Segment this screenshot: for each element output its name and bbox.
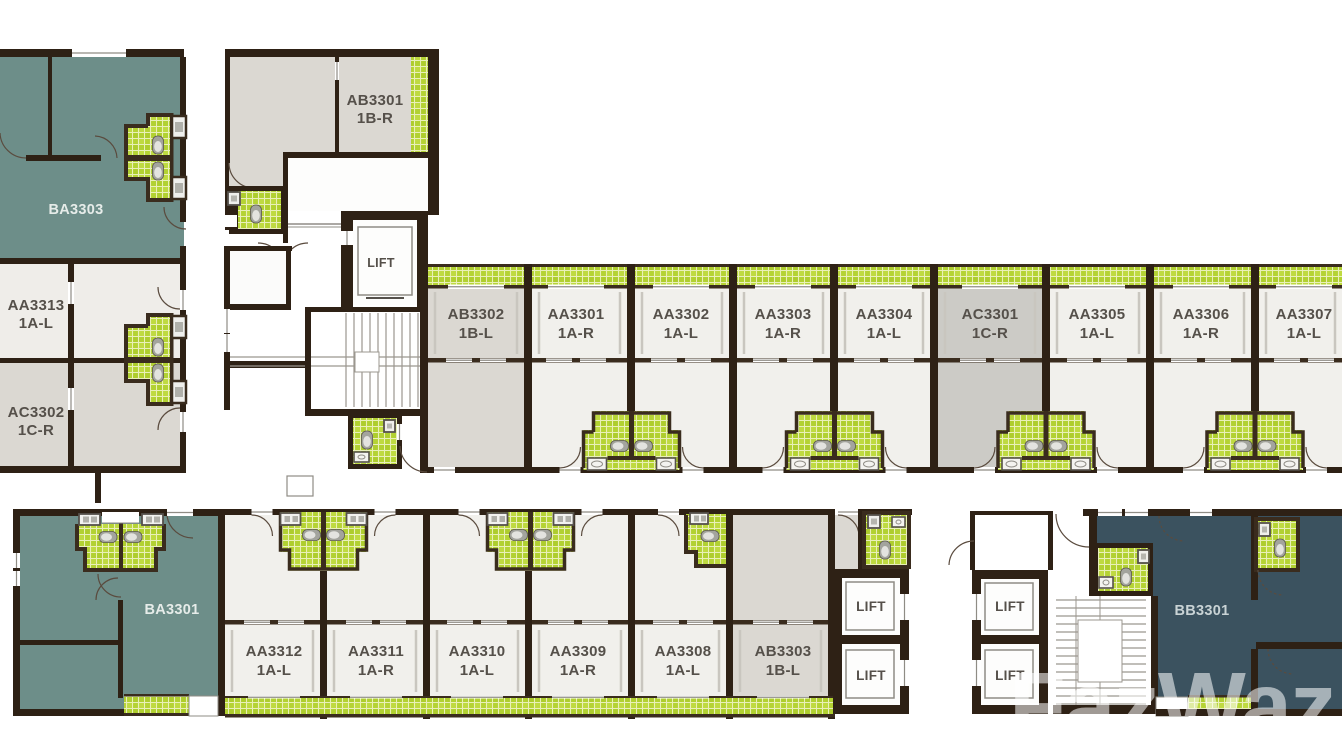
svg-text:AA3302: AA3302 [653, 306, 710, 323]
svg-text:BB3301: BB3301 [1175, 603, 1230, 619]
svg-text:LIFT: LIFT [995, 599, 1025, 614]
svg-text:1B-L: 1B-L [766, 662, 801, 679]
svg-text:AB3302: AB3302 [448, 306, 505, 323]
svg-text:1A-R: 1A-R [765, 325, 801, 342]
svg-text:AA3312: AA3312 [246, 643, 303, 660]
svg-text:1C-R: 1C-R [972, 325, 1008, 342]
svg-text:1A-L: 1A-L [19, 315, 54, 332]
svg-text:1A-L: 1A-L [1287, 325, 1322, 342]
svg-text:1A-L: 1A-L [460, 662, 495, 679]
svg-text:AA3307: AA3307 [1276, 306, 1333, 323]
svg-text:AB3301: AB3301 [347, 92, 404, 109]
svg-text:AA3303: AA3303 [755, 306, 812, 323]
svg-text:AA3310: AA3310 [449, 643, 506, 660]
svg-text:1B-R: 1B-R [357, 110, 393, 127]
svg-text:AA3309: AA3309 [550, 643, 607, 660]
svg-text:AB3303: AB3303 [755, 643, 812, 660]
svg-text:AA3308: AA3308 [655, 643, 712, 660]
svg-text:AA3304: AA3304 [856, 306, 913, 323]
svg-text:BA3303: BA3303 [49, 202, 104, 218]
svg-text:LIFT: LIFT [856, 599, 886, 614]
svg-text:1A-R: 1A-R [560, 662, 596, 679]
svg-text:1A-L: 1A-L [666, 662, 701, 679]
svg-text:1A-R: 1A-R [558, 325, 594, 342]
svg-text:AA3301: AA3301 [548, 306, 605, 323]
svg-text:AC3302: AC3302 [8, 404, 65, 421]
svg-text:1B-L: 1B-L [459, 325, 494, 342]
svg-text:LIFT: LIFT [856, 668, 886, 683]
svg-text:1A-R: 1A-R [358, 662, 394, 679]
svg-text:LIFT: LIFT [367, 256, 395, 270]
svg-text:AC3301: AC3301 [962, 306, 1019, 323]
svg-text:1A-L: 1A-L [257, 662, 292, 679]
svg-text:BA3301: BA3301 [145, 602, 200, 618]
svg-text:AA3313: AA3313 [8, 297, 65, 314]
svg-text:1C-R: 1C-R [18, 422, 54, 439]
svg-text:1A-L: 1A-L [867, 325, 902, 342]
svg-text:1A-L: 1A-L [1080, 325, 1115, 342]
svg-text:AA3306: AA3306 [1173, 306, 1230, 323]
svg-text:AA3305: AA3305 [1069, 306, 1126, 323]
svg-text:AA3311: AA3311 [348, 643, 404, 660]
svg-text:1A-R: 1A-R [1183, 325, 1219, 342]
svg-text:1A-L: 1A-L [664, 325, 699, 342]
